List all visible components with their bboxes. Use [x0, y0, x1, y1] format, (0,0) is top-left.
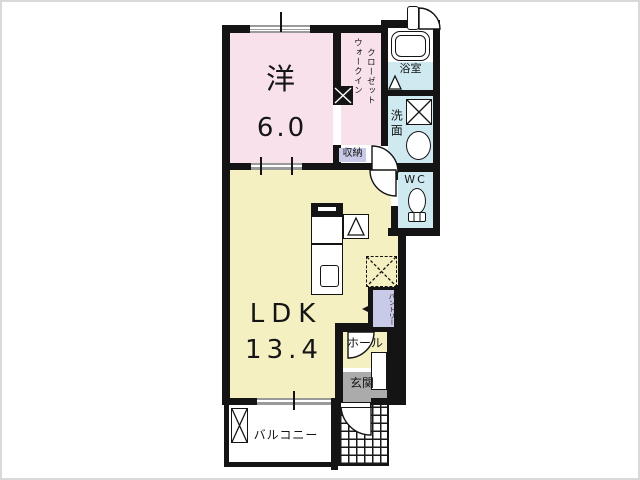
window-tick	[293, 391, 295, 410]
wall-balcony-porch-divider	[331, 398, 338, 470]
slider-tick	[260, 157, 262, 175]
outdoor-unit-icon	[231, 408, 248, 443]
wall-bath-right	[433, 20, 440, 236]
washing-machine-icon	[406, 99, 432, 125]
ldk-name-label: LDK	[236, 300, 336, 329]
wall-bath-bottom	[388, 228, 440, 236]
western-room-area	[230, 33, 333, 163]
slider-tick	[291, 157, 293, 175]
walk-in-closet-label-col2: クローゼット	[365, 48, 374, 105]
western-room-size-label: 6.0	[250, 114, 314, 143]
balcony-label: バルコニー	[249, 429, 323, 442]
counter-divider	[312, 243, 342, 245]
toilet-tank-icon	[408, 212, 426, 222]
porch-area	[338, 402, 389, 466]
pantry-label-strip: パントリー	[373, 290, 394, 327]
floorplan-canvas: 収納 パントリー 洋 6.0 LDK 13.4 ウォークイン クローゼット 浴室…	[0, 0, 640, 480]
kitchen-sink-icon	[320, 265, 339, 287]
wall-balcony-left	[224, 405, 229, 467]
entrance-label: 玄関	[343, 377, 381, 390]
wall-room-divider-b	[302, 163, 333, 170]
wc-door-opening	[391, 180, 398, 206]
wall-bath-west	[381, 25, 388, 146]
wall-wic-west	[333, 33, 341, 86]
wall-left	[222, 25, 230, 405]
sliding-door-western-ldk	[251, 163, 302, 170]
wall-balcony-bottom	[224, 462, 338, 467]
refrigerator-space-icon	[366, 256, 397, 287]
sink-icon	[406, 131, 431, 160]
bathtub-inner-icon	[395, 35, 426, 57]
washroom-label: 洗面	[389, 109, 402, 139]
front-door-leaf-icon	[340, 402, 371, 408]
toilet-bowl-icon	[408, 188, 426, 214]
ldk-size-label: 13.4	[230, 336, 338, 365]
window-tick	[280, 12, 282, 32]
hall-label: ホール	[343, 337, 387, 350]
storage-label-chip: 収納	[339, 148, 366, 162]
wall-bottom-c	[371, 398, 406, 405]
wall-bottom-a	[222, 398, 257, 405]
bathroom-label: 浴室	[388, 63, 433, 75]
exterior-door-leaf-icon	[407, 6, 419, 30]
western-room-name-label: 洋	[266, 64, 295, 96]
wall-corridor-bottom	[333, 163, 372, 170]
wall-bath-wash-divider	[388, 90, 433, 96]
toilet-label: WC	[398, 174, 433, 186]
triangle-box-icon	[343, 214, 369, 239]
wall-wash-bottom	[386, 163, 440, 172]
wall-room-divider-a	[222, 163, 251, 170]
walk-in-closet-label-col1: ウォークイン	[352, 38, 361, 95]
stove-slit-icon	[318, 207, 336, 211]
pillar-icon	[333, 86, 353, 105]
wall-hall-east	[387, 332, 406, 398]
